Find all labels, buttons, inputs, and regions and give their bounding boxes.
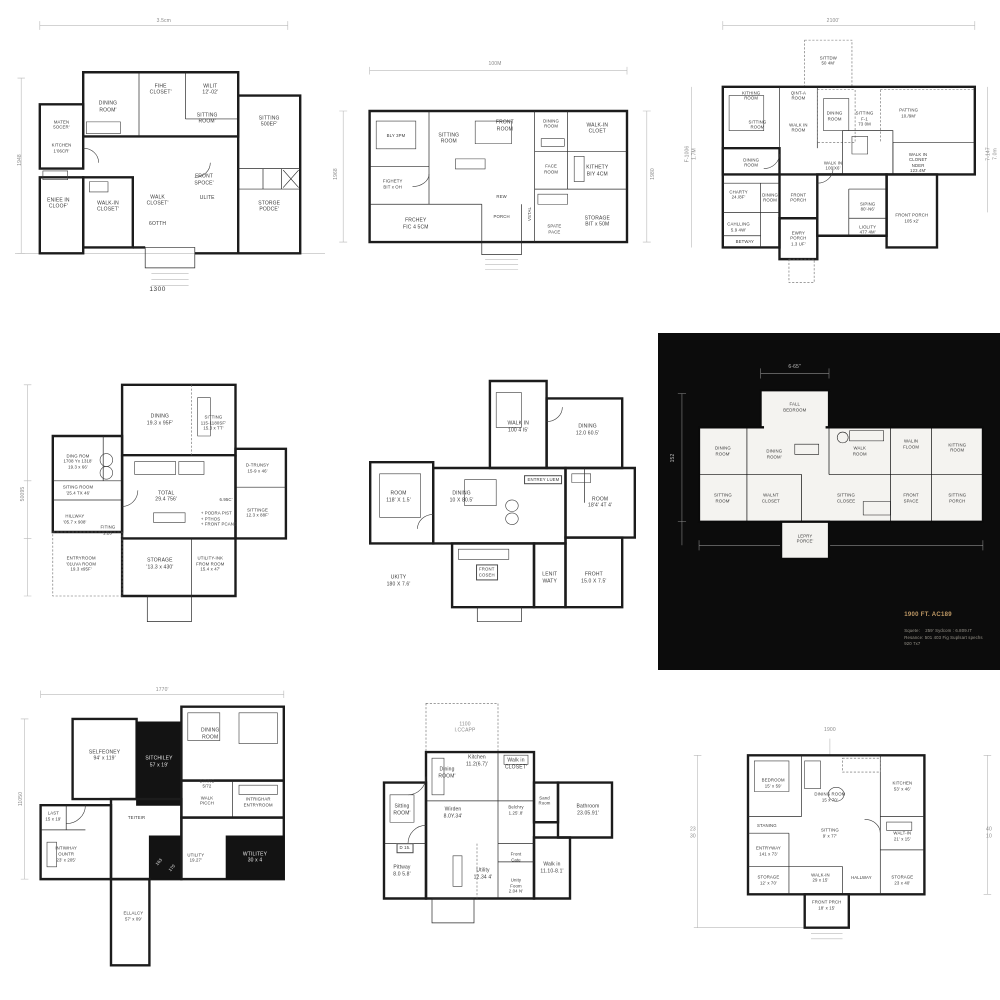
room-label: KITTING ROOM [948,442,966,453]
room-label: BEDROOM 15' x 59' [762,778,785,789]
floorplan-entrey-luem: WALK IN 100 4 I5'DINING 12.0 60.5'ROOM 1… [345,352,660,642]
room-label: ELLALCY 57' x 09' [124,911,144,922]
room-label: LIOLITY 477 4M' [859,224,876,235]
room-label: STORAGE 23 x 40' [891,875,913,886]
room-label: UKITY 180 X 7.6' [387,575,411,588]
room-label: Unity Foom 2.04 N' [509,878,523,895]
room-label: WALK IN 100 4 I5' [508,421,529,434]
room-label: FRONT ROOM [496,120,514,133]
room-label: SITCHILEY 57 x 19' [145,756,172,769]
floorplan-1100: 1100 I.CCAPPDining ROOM'Kitchen 11.2(6.7… [360,685,660,990]
room-label: UTILITY 19.27' [187,852,204,863]
room-label: SITTING 115-1180SF' 15.3 x TT' [201,415,226,432]
room-label: Pittway 8.0 5.8' [393,865,410,878]
room-label: ROOM 18'4' 4T 4' [588,496,612,509]
room-label: HALLWAY [851,875,872,881]
room-label: WALK IN 100'X6' [824,160,842,171]
room-label: SITING 5/72 [199,778,214,789]
room-label: SITTING F-1 73 0M [856,111,874,128]
room-label: DINING 12.0 60.5' [576,424,599,437]
room-label: FACE ROOM [544,163,558,174]
room-label: SITTING ROOM [749,119,767,130]
room-label: INTIWHAY OUNTR 23' x 205' [55,846,77,863]
floorplan-labels-1770: 1770'11050SELFEONEY 94' x 119'SITCHILEY … [15,682,335,990]
room-label: DINING ROOM' [766,449,782,460]
room-label: STANING [757,823,777,829]
room-label: CAHLLING 5.9 4W' [727,221,750,232]
plan-caption: 1900 FT. AC189 [904,612,952,620]
room-label: TOTAL 29.4 756' [155,490,177,503]
room-label: WALIN FLOOM [903,439,919,450]
floorplan-labels-100m: 100M19681980BLY 3PMSITTING ROOMFRONT ROO… [330,48,660,300]
dimension-label: 23 30 [690,827,696,840]
room-label: WALK-IN 29 x 15' [811,872,830,883]
room-label: LENIT WATY [542,572,557,585]
room-label: DINING ROOM [827,110,843,121]
dimension-label: 1100 I.CCAPP [454,721,475,734]
floorplan-sheet: 3.5cm19481300MATEN 5OCER'KITCHEN 1'06CR'… [0,0,1000,1000]
room-label: Sand Room [539,795,551,806]
room-label: KITHING ROOM [742,90,760,101]
room-label: QINT-A ROOM [791,90,806,101]
room-label: STORAGE 12' x 70' [758,875,780,886]
plan-caption: Squete: 259' Sydcom : 6.809.IT Resance: … [904,628,982,648]
room-label: Walk in CLOSET' [505,758,527,771]
room-label: Front Cate [511,852,522,863]
floorplan-labels-entrey-luem: WALK IN 100 4 I5'DINING 12.0 60.5'ROOM 1… [345,352,660,642]
room-label: CHARTY 24./8F' [729,189,747,200]
room-label: FRONT SPACE [903,493,918,504]
dimension-label: 50095 [20,486,27,501]
room-label: HILLWAY '05.7 x 908' [63,514,86,525]
room-label: Bathroom 23.05.91' [577,804,600,817]
room-label: DING ROM 1708 Yx 1318' 19.3 x 66' [64,453,93,470]
room-label: WALK-IN CLOSET' [97,200,119,213]
room-label: FRONT PRCH 18' x 15' [812,900,841,911]
dimension-label: 1770' [156,686,169,693]
floorplan-labels-1900-dark: 6-65''152FALL BEDROOMDINING ROOM'DINING … [658,333,1000,670]
dimension-label: 11050 [18,792,25,806]
room-label: WALK IN CLONET NDER 123.4M' [909,152,927,174]
dimension-label: F-1006 1.7M [685,146,698,163]
dimension-label: 7-147 7.0m [986,147,999,161]
room-label: DINING ROOM [762,192,778,203]
room-label: SITTING 9' x 77' [821,828,839,839]
room-label: 6OTTH [149,221,166,228]
room-label: WALK IN ROOM [789,122,807,133]
room-label: Wirden 8.0Y.34' [444,807,463,820]
room-label: DINING 10 X 80.5' [450,491,474,504]
floorplan-labels-total: 50095DINING 19.3 x 95F'SITTING 115-1180S… [15,340,330,660]
dimension-label: 100M [488,61,501,68]
room-label: PORCH [494,214,510,220]
room-label: FRONT SPOCE' [194,174,213,187]
floorplan-100m: 100M19681980BLY 3PMSITTING ROOMFRONT ROO… [330,48,660,300]
room-label: DINING ROOM' [99,101,117,114]
room-label: SIPING 80'-N6' [860,201,875,212]
room-label: KITHETY BIY 4CM [586,165,608,178]
dimension-label: 2100' [827,18,840,25]
dimension-label: VSTAL [527,207,533,221]
room-label: SITTING ROOM [438,132,459,145]
dimension-label: 1948 [16,154,23,166]
room-label: ULITE [200,195,215,202]
room-label: STORAGE BIT x 50M [585,215,610,228]
dimension-label: 6-65'' [788,363,801,370]
room-label: Kitchen 11.2(6.7)' [466,755,488,768]
dimension-label: 1980 [650,168,657,180]
room-label: FIHE CLOSET' [150,83,172,96]
room-label: SITTING ROOM' [197,112,218,125]
room-label: SITTINGE 12.3 x 88F' [246,507,269,518]
room-label: FIGHETY BIT x OH [383,179,403,190]
dimension-label: 1900 [824,727,836,734]
room-label: KITCHEN 53' x 46' [892,780,912,791]
room-label: WALK CLOSET' [147,194,169,207]
room-label: WALT-IN 21' x 15' [893,830,911,841]
floorplan-labels-2100: 2100'F-1006 1.7M7-147 7.0mSITTDW 50 4M'K… [685,8,1000,300]
room-label: FITING 1.23' [100,525,115,536]
floorplan-1300: 3.5cm19481300MATEN 5OCER'KITCHEN 1'06CR'… [15,8,325,300]
floorplan-1900-dark: 6-65''152FALL BEDROOMDINING ROOM'DINING … [658,333,1000,670]
floorplan-labels-1900: 190023 3040 10BEDROOM 15' x 59'DINING RO… [685,722,1000,1000]
room-label: STORGE PODCE' [258,200,280,213]
dimension-label: 3.5cm [157,18,171,25]
room-label: DINING ROOM 15 x 70' [814,791,845,802]
floorplan-1770: 1770'11050SELFEONEY 94' x 119'SITCHILEY … [15,682,335,990]
room-label: FRONT COSEH [476,565,498,580]
room-label: WILIT 12'-02' [202,83,218,96]
room-label: Walk in 11.10-8.1' [540,862,563,875]
room-label: 170 [167,864,176,873]
room-label: Dining ROOM' [438,767,455,780]
floorplan-labels-1100: 1100 I.CCAPPDining ROOM'Kitchen 11.2(6.7… [360,685,660,990]
room-label: ENIEE IN CLOOF' [47,197,70,210]
room-label: FALL BEDROOM [783,402,806,413]
room-label: SITTING PORCH [948,493,966,504]
room-label: 163 [154,857,163,866]
floorplan-1900: 190023 3040 10BEDROOM 15' x 59'DINING RO… [685,722,1000,1000]
room-label: BETWAY [736,239,754,245]
room-label: STORAGE '13.3 x 430' [146,558,173,571]
room-label: REW [496,194,506,200]
room-label: SITTING ROOM' [714,493,732,504]
room-label: DINING ROOM [743,157,759,168]
room-label: FRONT PORCH [790,192,806,203]
room-label: ENTRYROOM '01UVA ROOM 19.3 x95F' [66,556,96,573]
floorplan-2100: 2100'F-1006 1.7M7-147 7.0mSITTDW 50 4M'K… [685,8,1000,300]
room-label: DINING ROOM [543,118,559,129]
room-label: MATEN 5OCER' [53,119,69,130]
room-label: SITTDW 50 4M' [820,55,837,66]
room-label: 6.95C' [220,497,233,503]
room-label: SITTING 500EF' [259,115,280,128]
room-label: SPATE PACE [547,224,561,235]
room-label: SELFEONEY 94' x 119' [89,749,120,762]
dimension-label: 152 [670,453,677,462]
room-label: ENTRYWAY 141 x 73' [756,846,781,857]
room-label: PATTING 10./9M' [899,108,918,119]
room-label: ENTREY LUEM [524,475,562,485]
plan-caption: 1300 [149,286,166,294]
dimension-label: 1968 [333,168,340,180]
floorplan-labels-1300: 3.5cm19481300MATEN 5OCER'KITCHEN 1'06CR'… [15,8,325,300]
room-label: FRCHEY FIC 4 5CM [403,218,429,231]
room-label: EWRY PORCH 1.3 UF' [790,230,806,247]
room-label: INTRIGHAR ENTRYROOM [244,797,273,808]
room-label: WALK-IN CLOET [586,122,608,135]
room-label: WALK ROOM [853,445,867,456]
room-label: Sitting ROOM' [393,804,410,817]
room-label: + PODRA PIST + PTHOS + FRONT PCANS [201,511,237,528]
room-label: FRONT PORCH 105 x2' [895,213,928,224]
room-label: FROHT 15.0 X 7.5' [581,572,606,585]
room-label: SITING ROOM '25.4 TX 46' [63,485,93,496]
room-label: UTILITY-INK FROM ROOM 15.4 x 47' [196,556,224,573]
room-label: Utility 12.34 4' [474,868,493,881]
room-label: SITTING CLOSEE [837,493,855,504]
room-label: D-TRUNSY 15-9 x 46' [246,462,269,473]
room-label: DINING ROOM' [715,445,731,456]
room-label: LAST 15 x 19' [45,810,61,821]
room-label: D 15. [397,843,414,853]
room-label: WALK PICCH [200,795,214,806]
dimension-label: 40 10 [986,827,992,840]
room-label: WALNT CLOSET [762,493,780,504]
room-label: DINING ROOM [201,728,219,741]
room-label: ROOM 118' X 1.5' [386,491,411,504]
room-label: LEPRY PORCE' [797,533,814,544]
room-label: TEITEIR [128,815,145,821]
room-label: Belchry 1.25'.8' [508,804,523,815]
room-label: KITCHEN 1'06CR' [52,143,72,154]
room-label: BLY 3PM [387,133,406,139]
room-label: DINING 19.3 x 95F' [147,414,173,427]
floorplan-total: 50095DINING 19.3 x 95F'SITTING 115-1180S… [15,340,330,660]
room-label: WTILITEY 30 x 4 [243,851,267,864]
